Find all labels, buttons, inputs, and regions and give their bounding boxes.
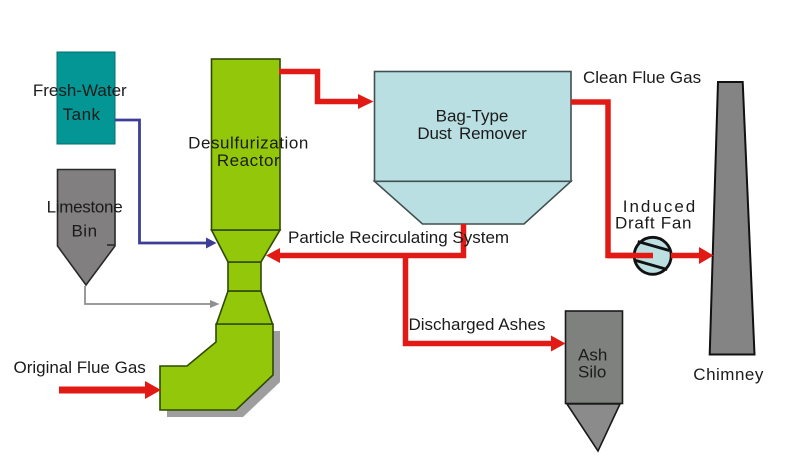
svg-text:Silo: Silo <box>578 362 606 381</box>
svg-text:Tank: Tank <box>63 105 101 124</box>
svg-text:Discharged Ashes: Discharged Ashes <box>409 315 546 334</box>
svg-text:Clean Flue Gas: Clean Flue Gas <box>583 68 701 87</box>
svg-text:Reactor: Reactor <box>217 151 280 170</box>
svg-text:Fresh-Water: Fresh-Water <box>33 81 127 100</box>
svg-text:Limestone: Limestone <box>47 197 123 216</box>
svg-text:Particle Recirculating System: Particle Recirculating System <box>288 228 509 247</box>
svg-text:Bag-Type: Bag-Type <box>436 106 509 125</box>
svg-text:Chimney: Chimney <box>693 365 764 384</box>
svg-text:Bin: Bin <box>71 221 97 240</box>
svg-text:Original Flue Gas: Original Flue Gas <box>14 358 146 377</box>
svg-text:Desulfurization: Desulfurization <box>188 133 309 152</box>
svg-text:Draft Fan: Draft Fan <box>615 214 692 233</box>
svg-text:Dust Remover: Dust Remover <box>417 124 527 143</box>
